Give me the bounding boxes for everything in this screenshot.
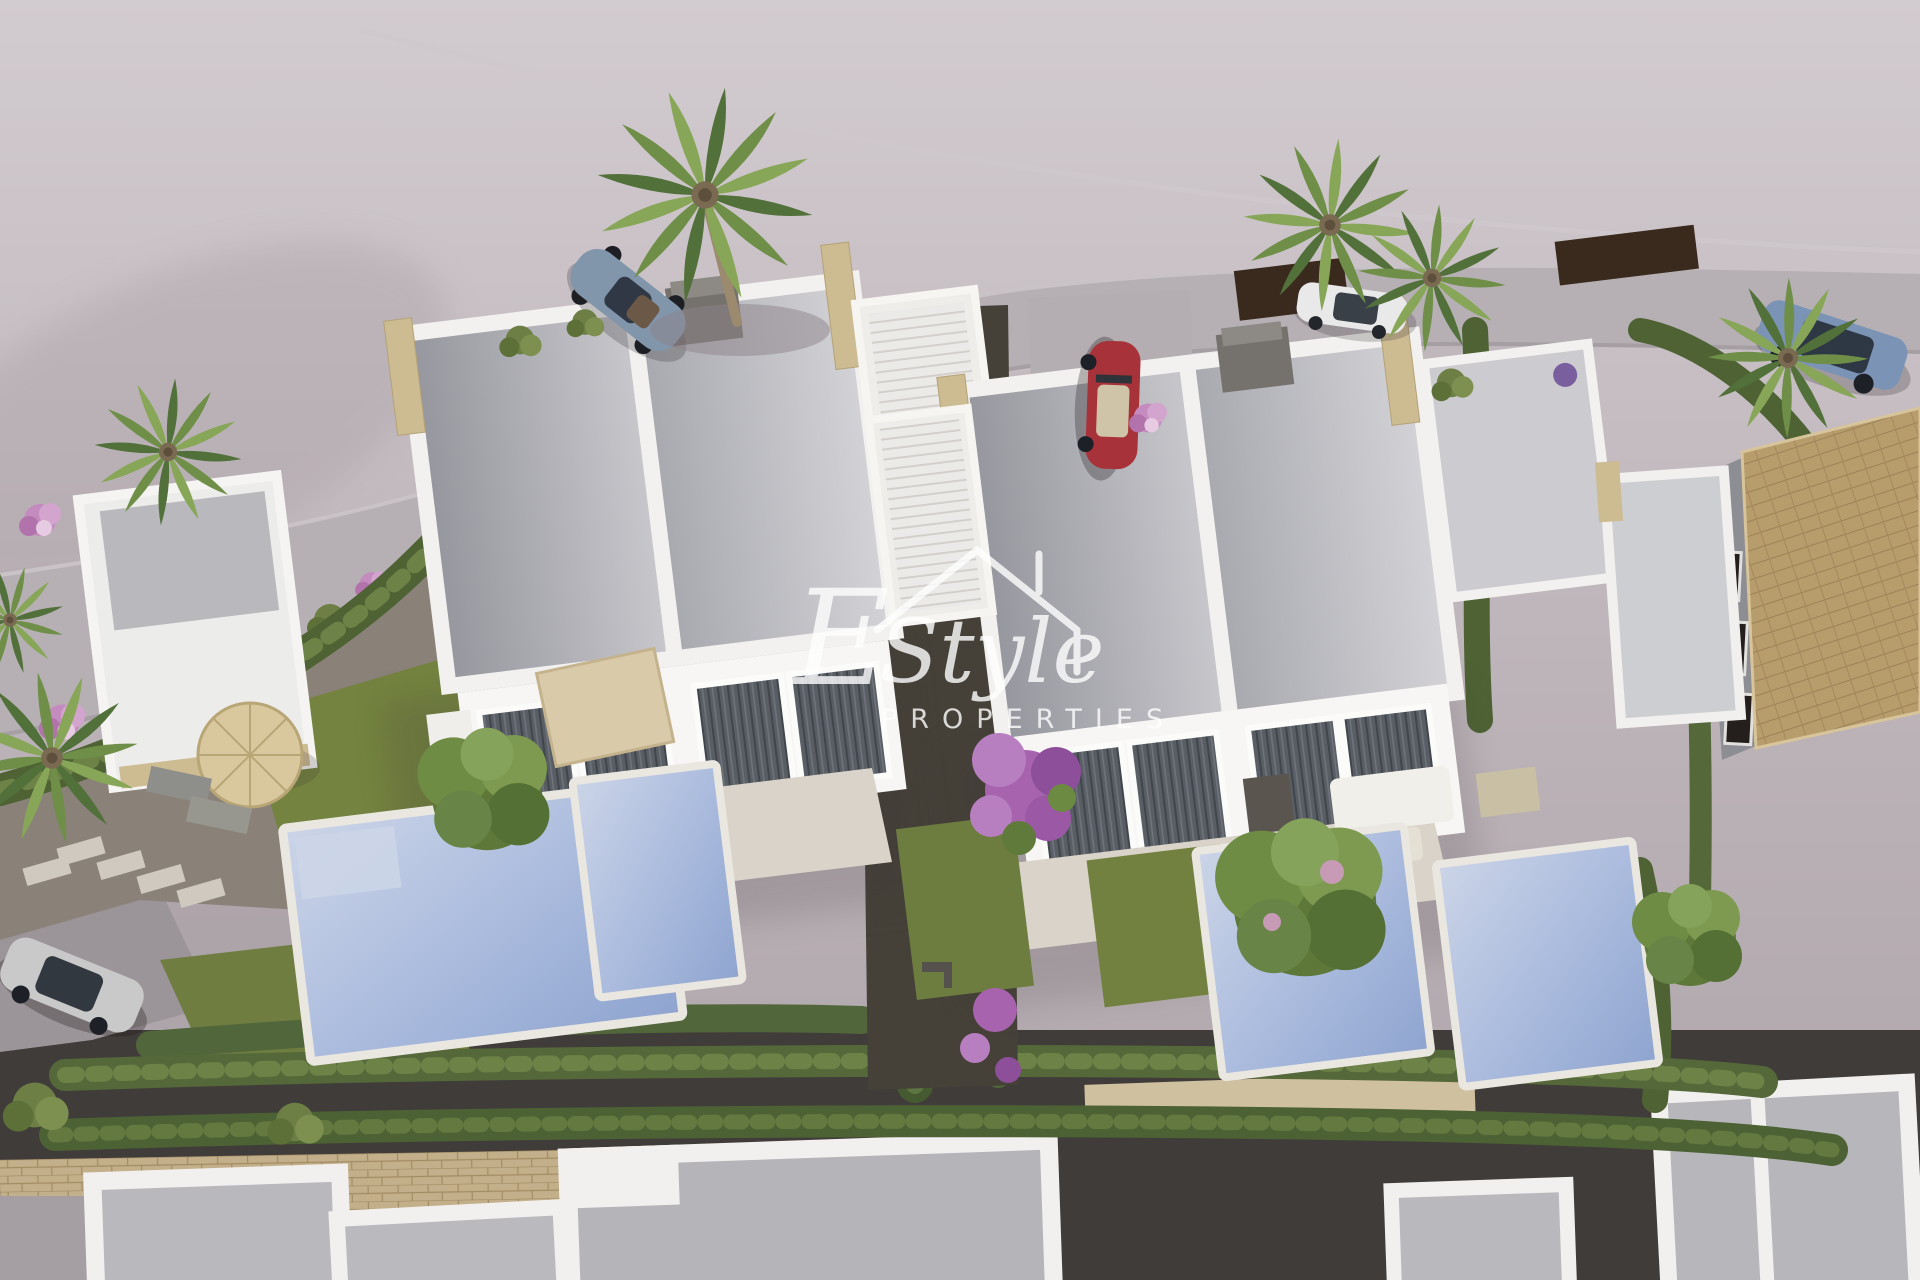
bottom-building-3 — [558, 1131, 1063, 1280]
pool — [572, 764, 742, 998]
bottom-building-1 — [83, 1163, 352, 1280]
watermark-initial: E — [791, 562, 889, 716]
watermark-subtitle: PROPERTIES — [881, 704, 1176, 735]
scene-svg: E Style PROPERTIES — [0, 0, 1920, 1280]
window — [1129, 732, 1230, 854]
bottom-building-5 — [1650, 1073, 1920, 1280]
watermark-script: Style — [879, 600, 1105, 703]
render-canvas: E Style PROPERTIES — [0, 0, 1920, 1280]
left-villa-roof-a — [414, 315, 666, 677]
bottom-building-2 — [328, 1199, 572, 1280]
red-convertible — [1072, 336, 1141, 482]
bottom-building-4 — [1383, 1177, 1577, 1280]
pool — [1436, 840, 1660, 1086]
side-terrace — [1604, 471, 1741, 724]
